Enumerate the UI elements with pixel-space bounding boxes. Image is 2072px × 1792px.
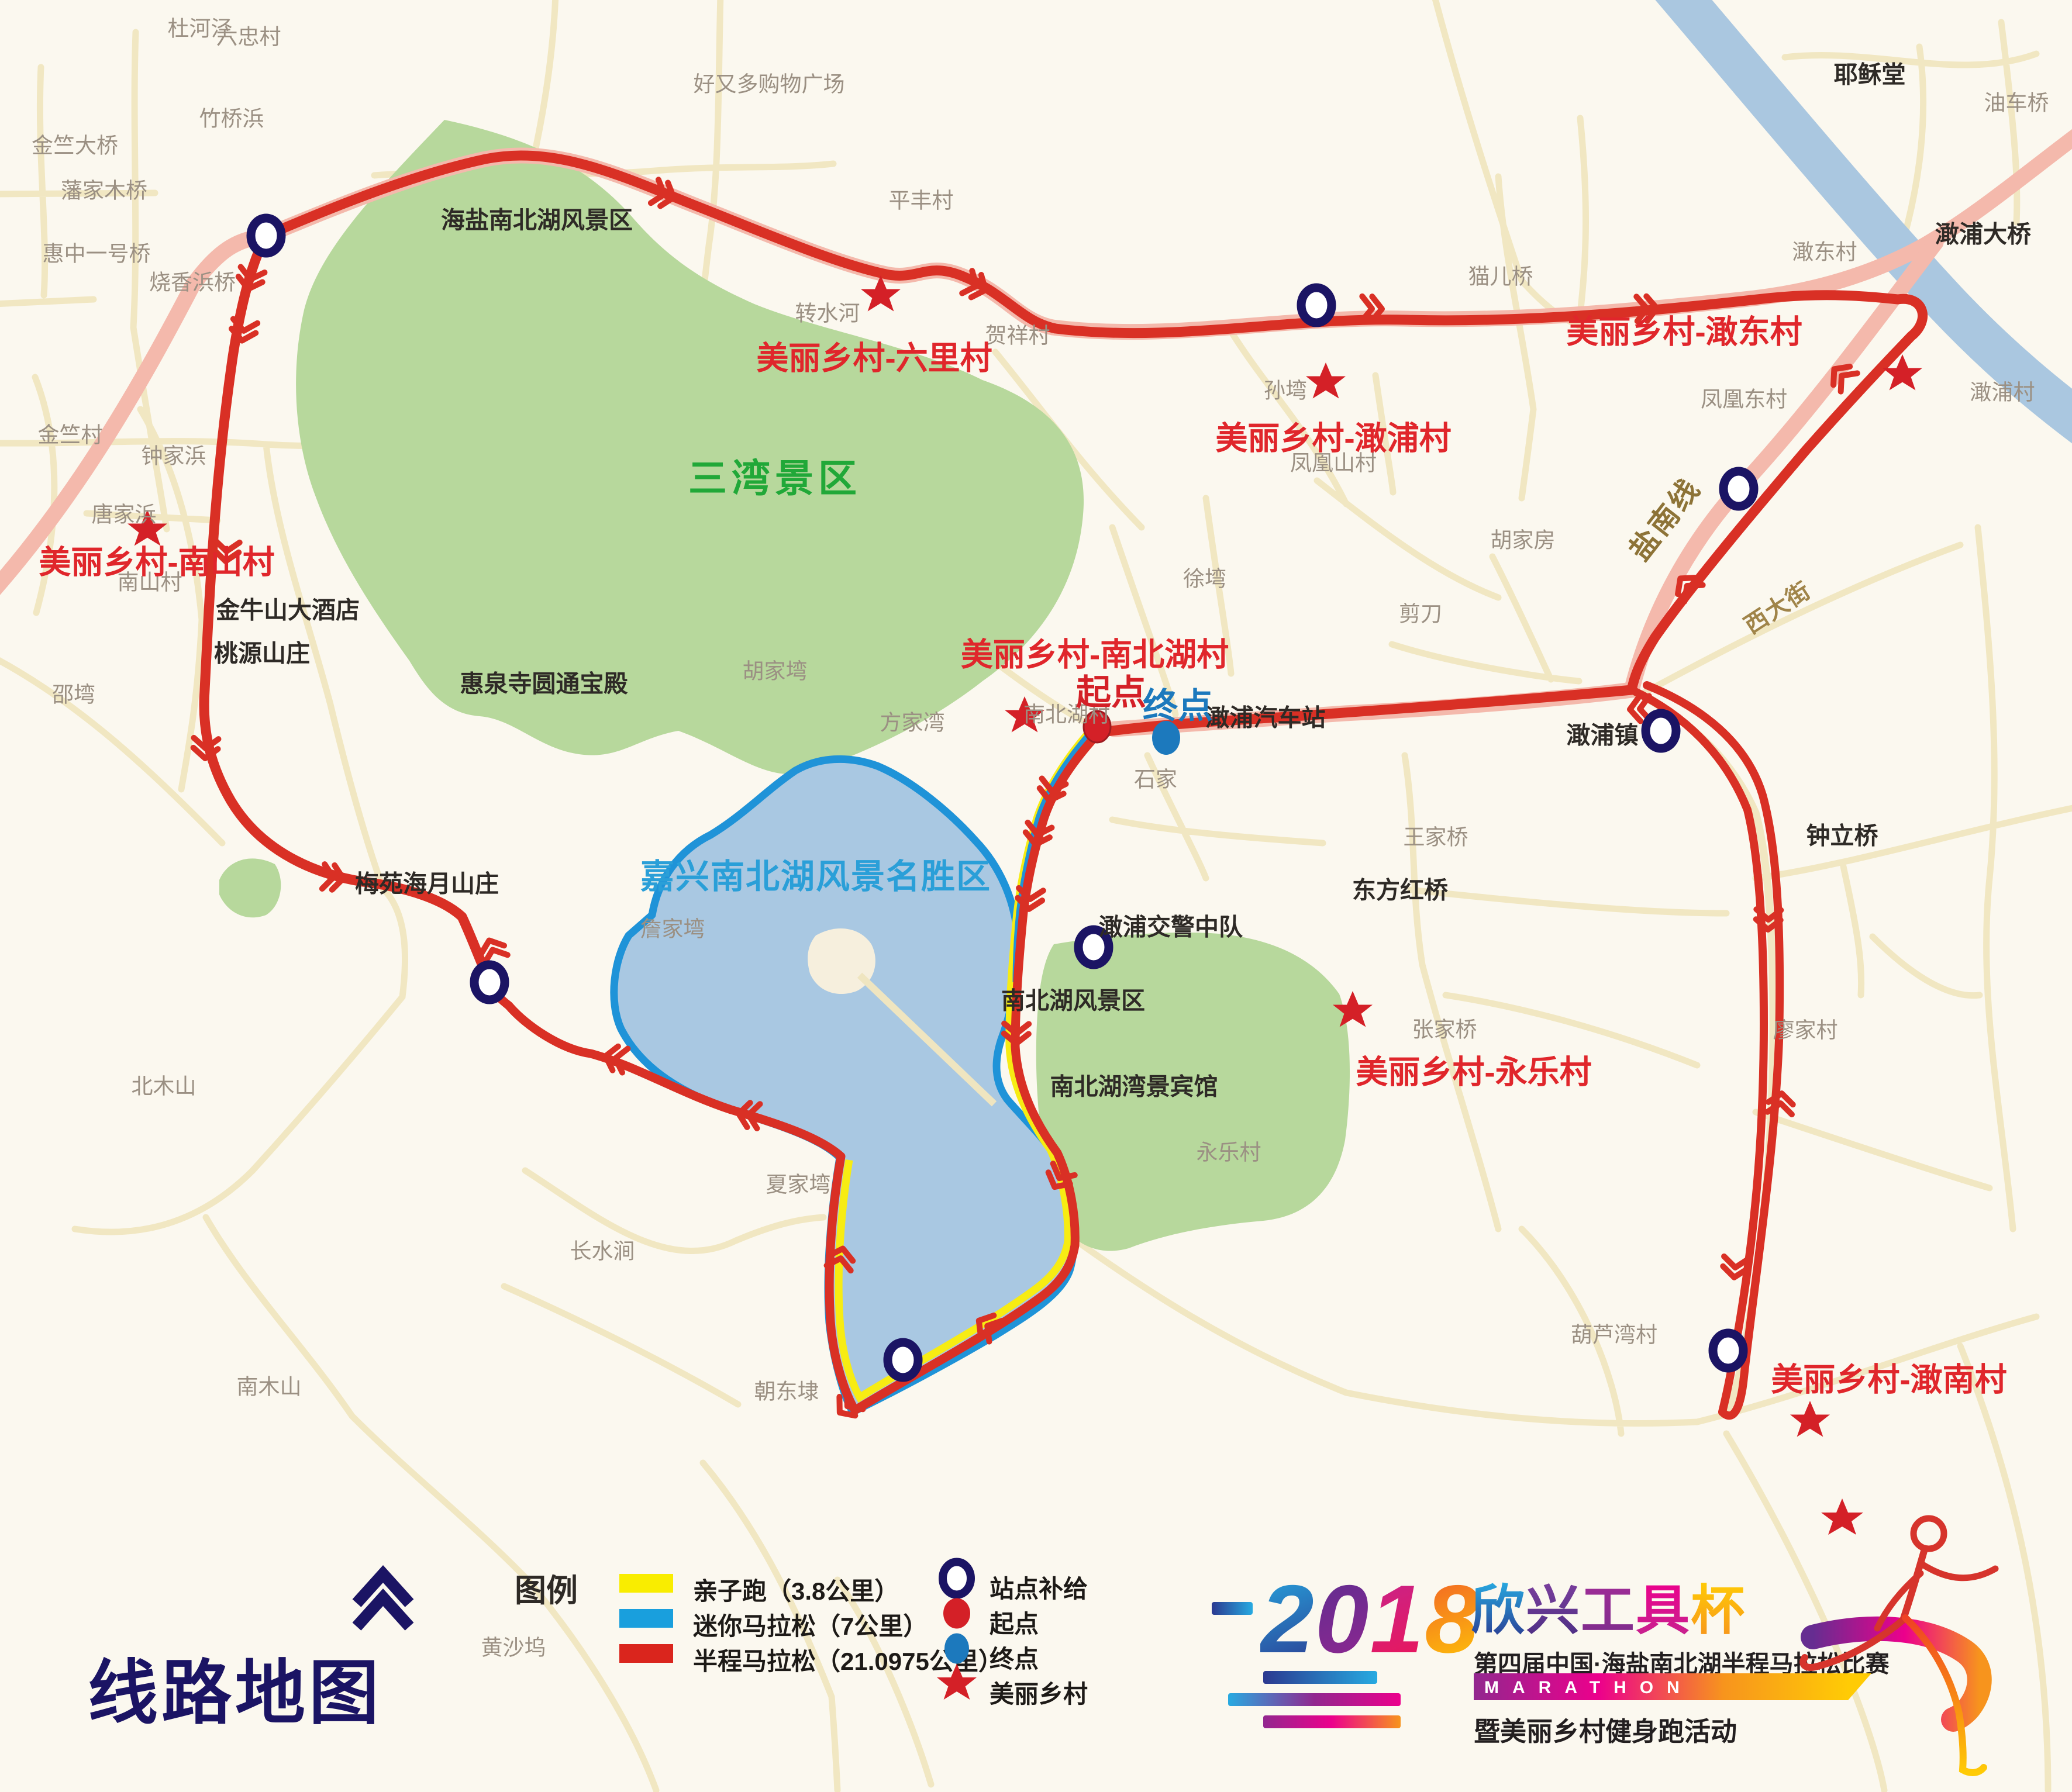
half-marathon-swatch: [619, 1644, 673, 1663]
mini-marathon-label: 迷你马拉松（7公里）: [693, 1607, 928, 1642]
star-gannancun: [1790, 1401, 1830, 1437]
kids-run-swatch: [619, 1574, 673, 1593]
logo-stripe: [1228, 1693, 1401, 1706]
mini-marathon-swatch: [619, 1609, 673, 1628]
supply-ring-8: [1713, 1333, 1743, 1368]
page-title: 线路地图: [88, 1636, 382, 1738]
start-point-label: 起点: [990, 1604, 1039, 1640]
chevron-up-icon: [345, 1561, 421, 1634]
supply-ring-3: [1723, 471, 1754, 506]
marathon-route-map: [0, 0, 2072, 1792]
star-ganpucun: [1306, 362, 1346, 399]
supply-ring-5: [1078, 930, 1109, 965]
red-star-icon: [935, 1662, 979, 1709]
lakeside-park-area: [1036, 933, 1350, 1251]
supply-station-label: 站点补给: [990, 1569, 1088, 1605]
supply-ring-4: [1646, 713, 1676, 748]
route-arrow-icon: [213, 540, 240, 562]
start-dot-icon: [940, 1596, 973, 1634]
supply-ring-7: [888, 1342, 918, 1377]
finish-point-label: 终点: [990, 1639, 1039, 1675]
runner-star-icon: [1821, 1498, 1863, 1535]
supply-ring-2: [1301, 288, 1332, 323]
supply-ring-6: [474, 965, 505, 1000]
beautiful-village-label: 美丽乡村: [990, 1674, 1088, 1710]
marathon-text: MARATHON: [1484, 1678, 1693, 1698]
start-marker: [1084, 711, 1111, 743]
event-subtitle-2: 暨美丽乡村健身跑活动: [1474, 1710, 1737, 1748]
map-title-block: 线路地图: [88, 1636, 382, 1738]
river: [1664, 0, 2072, 433]
sponsor-cup-name: 欣兴工具杯: [1471, 1567, 1746, 1645]
logo-stripe: [1212, 1602, 1253, 1615]
route-map-canvas: 杜河泾六忠村好又多购物广场平丰村转水河贺祥村猫儿桥油车桥澉东村凤凰东村澉浦村竹桥…: [0, 0, 2072, 1792]
sanwan-park-area: [296, 120, 1084, 774]
event-year: 2018: [1260, 1564, 1480, 1674]
star-nanbeihucun: [1005, 696, 1044, 733]
kids-run-label: 亲子跑（3.8公里）: [693, 1572, 899, 1607]
legend-title: 图例: [515, 1565, 578, 1611]
runner-graphic: [1778, 1488, 2070, 1792]
supply-ring-1: [251, 218, 281, 253]
supply-ring-icon: [938, 1558, 975, 1602]
event-logo: 2018 欣兴工具杯 第四届中国·海盐南北湖半程马拉松比赛 MARATHON 暨…: [1205, 1532, 2070, 1789]
finish-marker: [1152, 721, 1180, 755]
logo-stripe: [1263, 1715, 1401, 1728]
